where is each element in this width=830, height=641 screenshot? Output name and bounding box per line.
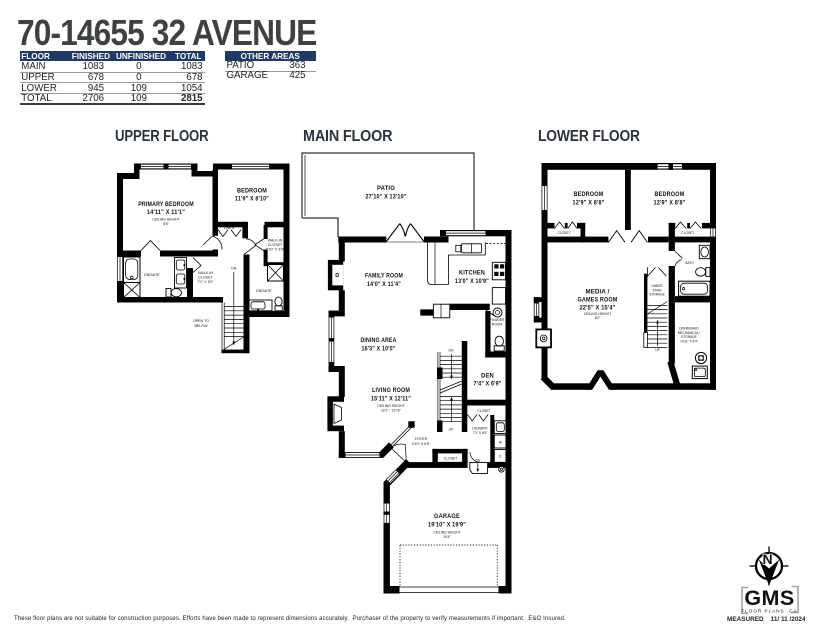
svg-text:CEILING HEIGHT: CEILING HEIGHT: [584, 312, 611, 316]
svg-text:CLOSET: CLOSET: [681, 231, 694, 235]
svg-text:19'10" X 19'9": 19'10" X 19'9": [428, 522, 466, 529]
svg-text:14'11" X 11'1": 14'11" X 11'1": [147, 209, 185, 216]
svg-text:CLOSET: CLOSET: [558, 231, 571, 235]
svg-text:27'10" X 13'10": 27'10" X 13'10": [366, 194, 407, 201]
svg-text:D: D: [499, 455, 502, 459]
svg-text:CLOSET: CLOSET: [444, 457, 457, 461]
svg-text:UP: UP: [449, 428, 454, 432]
svg-text:CLOSET: CLOSET: [477, 409, 490, 413]
svg-text:8'2": 8'2": [595, 316, 601, 320]
svg-text:CLOSET: CLOSET: [198, 276, 213, 280]
svg-text:10'4": 10'4": [443, 535, 451, 539]
svg-text:PATIO: PATIO: [377, 185, 395, 192]
svg-text:LIVING ROOM: LIVING ROOM: [372, 387, 410, 394]
svg-text:15'11" X 12'11": 15'11" X 12'11": [371, 396, 411, 403]
svg-text:DEN: DEN: [481, 373, 494, 380]
svg-text:GAMES ROOM: GAMES ROOM: [578, 297, 618, 304]
svg-text:FOYER: FOYER: [415, 437, 428, 441]
svg-text:CEILING HEIGHT: CEILING HEIGHT: [433, 531, 460, 535]
svg-text:LINEN: LINEN: [224, 226, 235, 230]
svg-text:12'9" X 8'8": 12'9" X 8'8": [573, 199, 605, 206]
svg-text:8'6": 8'6": [163, 222, 169, 226]
svg-text:14'11" X 6'4": 14'11" X 6'4": [680, 339, 698, 343]
svg-text:CEILING HEIGHT: CEILING HEIGHT: [377, 404, 404, 408]
svg-text:GARAGE: GARAGE: [434, 513, 460, 520]
svg-text:10'1" - 13'10": 10'1" - 13'10": [381, 409, 402, 413]
svg-text:FAMILY ROOM: FAMILY ROOM: [365, 273, 403, 280]
svg-text:GMS: GMS: [744, 586, 794, 610]
svg-text:16'3" X 10'0": 16'3" X 10'0": [362, 346, 396, 353]
svg-text:MEDIA /: MEDIA /: [586, 288, 610, 295]
svg-text:22'5" X 15'4": 22'5" X 15'4": [580, 304, 616, 311]
svg-text:N: N: [762, 551, 772, 567]
svg-text:DINING AREA: DINING AREA: [361, 337, 397, 344]
svg-text:BEDROOM: BEDROOM: [574, 191, 604, 198]
svg-text:WALK-IN: WALK-IN: [268, 239, 283, 243]
svg-text:UP: UP: [655, 348, 659, 352]
svg-text:ENSUITE: ENSUITE: [144, 273, 160, 277]
svg-text:9'10" X 6'5": 9'10" X 6'5": [412, 442, 431, 446]
svg-text:ENSUITE: ENSUITE: [256, 289, 272, 293]
svg-text:7'1" X 5'3": 7'1" X 5'3": [197, 280, 214, 284]
svg-text:7'4" X 6'9": 7'4" X 6'9": [474, 381, 502, 388]
svg-text:CEILING HEIGHT: CEILING HEIGHT: [152, 218, 179, 222]
svg-text:W: W: [499, 441, 503, 445]
svg-text:OPEN TO: OPEN TO: [193, 319, 209, 323]
svg-text:KITCHEN: KITCHEN: [459, 270, 485, 277]
svg-text:12'9" X 8'8": 12'9" X 8'8": [654, 199, 686, 206]
svg-text:BELOW: BELOW: [195, 324, 209, 328]
svg-text:BEDROOM: BEDROOM: [655, 191, 685, 198]
svg-text:11'9" X 8'10": 11'9" X 8'10": [235, 196, 269, 203]
svg-text:DN: DN: [475, 458, 480, 462]
svg-text:WALK-IN: WALK-IN: [198, 271, 213, 275]
svg-text:BEDROOM: BEDROOM: [237, 188, 267, 195]
svg-text:STORAGE: STORAGE: [649, 293, 665, 297]
svg-text:13'0" X 10'9": 13'0" X 10'9": [455, 278, 489, 285]
svg-text:7'3" X 6'9": 7'3" X 6'9": [473, 431, 489, 435]
svg-text:BATH: BATH: [685, 261, 694, 265]
svg-text:DN: DN: [231, 267, 237, 271]
svg-text:DN: DN: [449, 349, 454, 353]
svg-text:FLOOR PLANS .CA: FLOOR PLANS .CA: [741, 608, 797, 613]
svg-text:5'10" X 3'4": 5'10" X 3'4": [266, 248, 285, 252]
svg-text:PRIMARY BEDROOM: PRIMARY BEDROOM: [138, 201, 194, 208]
svg-text:CLOSET: CLOSET: [268, 243, 283, 247]
svg-text:ROOM: ROOM: [492, 322, 503, 326]
svg-text:14'0" X 11'4": 14'0" X 11'4": [367, 281, 401, 288]
